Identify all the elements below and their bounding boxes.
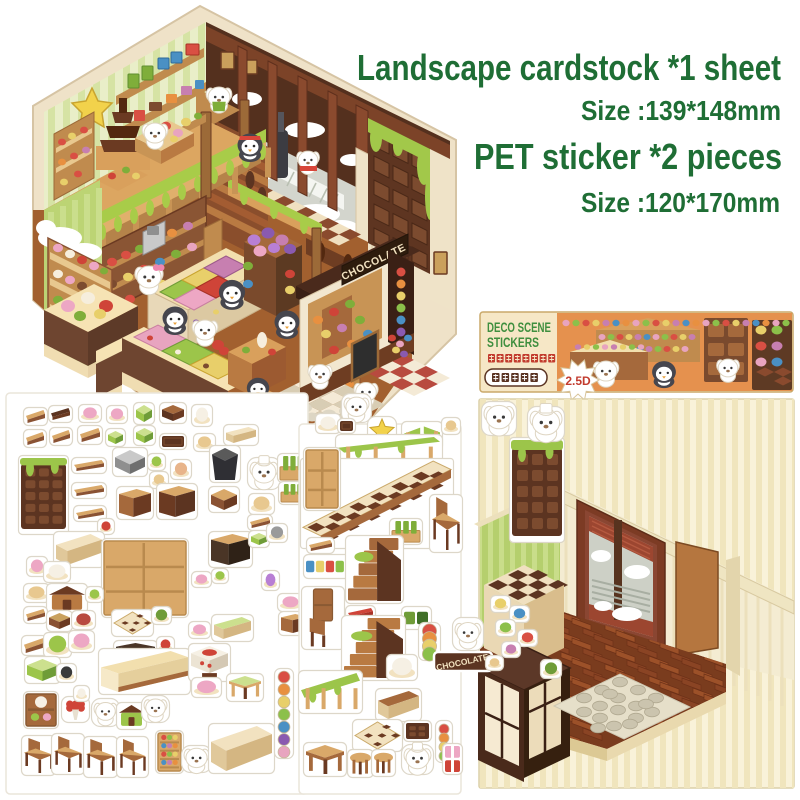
svg-text:2.5D: 2.5D [565,374,591,388]
svg-text:Size :139*148mm: Size :139*148mm [581,95,781,126]
svg-text:STICKERS: STICKERS [487,335,539,350]
svg-text:Landscape cardstock *1 sheet: Landscape cardstock *1 sheet [357,47,781,88]
svg-text:Size :120*170mm: Size :120*170mm [581,187,780,218]
svg-text:PET sticker *2 pieces: PET sticker *2 pieces [474,136,782,177]
svg-text:DECO SCENE: DECO SCENE [487,320,551,335]
